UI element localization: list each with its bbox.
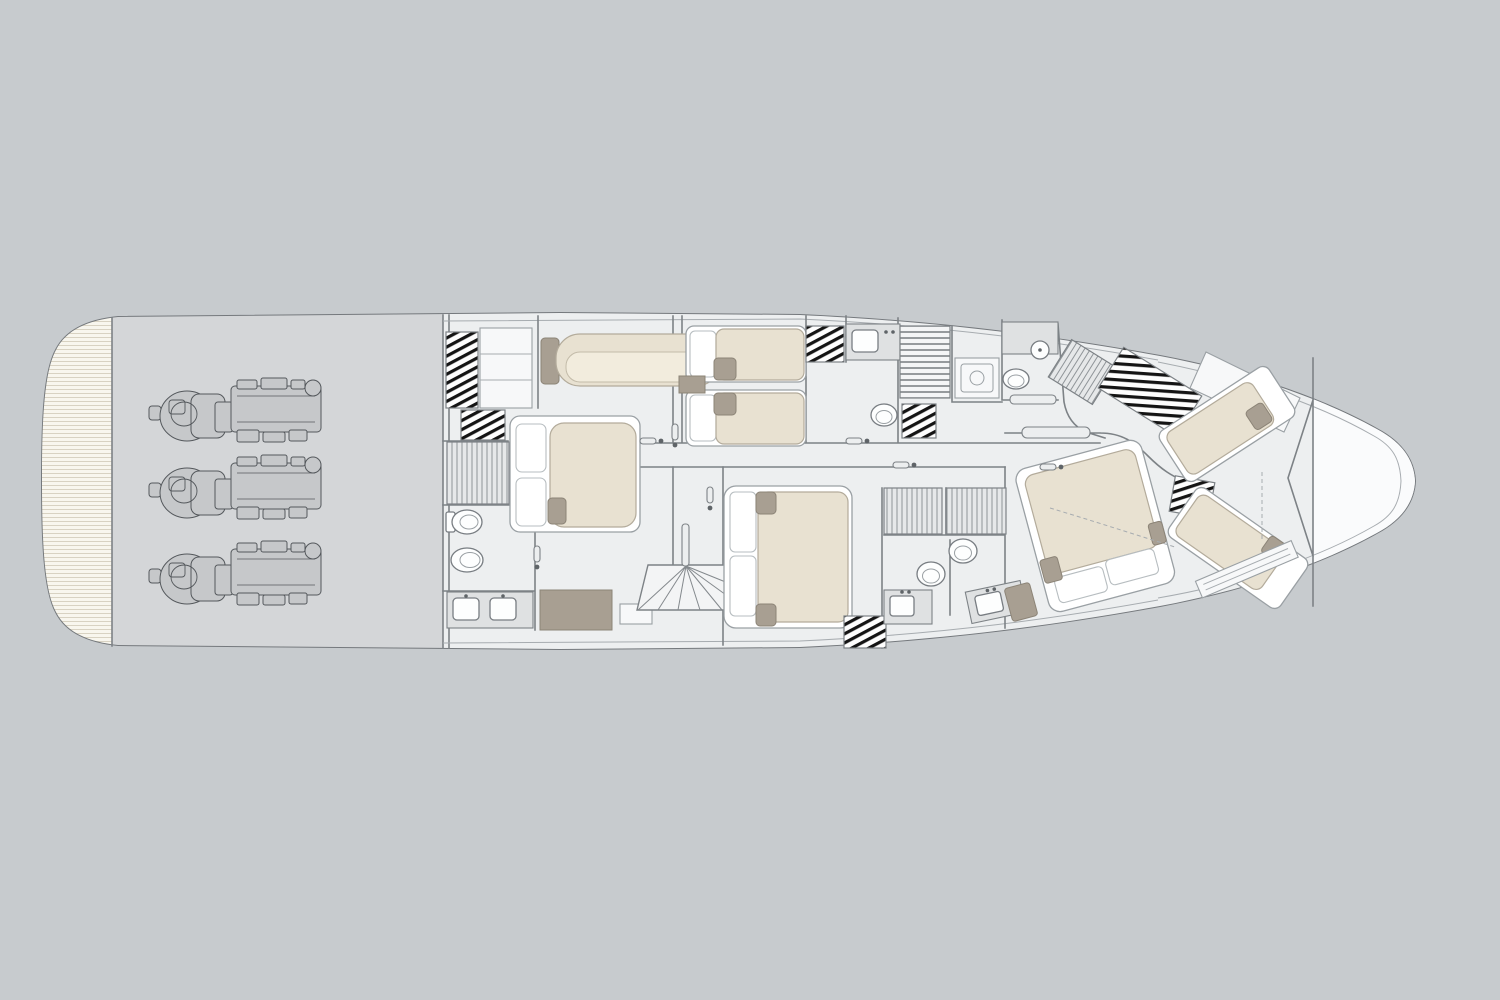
twin-vanity <box>846 324 900 360</box>
twin-pillow-2 <box>690 395 716 441</box>
master-bench <box>540 590 612 630</box>
master-pillow-2 <box>516 478 546 526</box>
floor-plan-canvas <box>0 0 1500 1000</box>
twin-wardrobe-hatch <box>806 326 844 362</box>
master-bed <box>510 416 640 532</box>
stair-handrail <box>682 524 689 566</box>
sliding-door-day-head <box>1010 395 1056 404</box>
mid-pillow-1 <box>730 492 756 552</box>
master-toilet <box>446 510 482 534</box>
door-handle-mid-cabin <box>707 487 713 510</box>
vip-sideboard <box>1022 427 1090 438</box>
door-handle-guest-bath <box>893 462 916 468</box>
engine-room <box>149 378 321 605</box>
twin-toilet <box>871 404 897 426</box>
twin-bed-2 <box>686 390 806 446</box>
bow-storage-floor <box>1313 310 1423 655</box>
guest-toilet-2 <box>949 539 977 563</box>
laundry-appliance <box>955 358 999 398</box>
mid-corner-2 <box>756 604 776 626</box>
door-handle-master-bath <box>534 546 540 569</box>
twin-sink <box>852 330 878 352</box>
day-head-toilet <box>1003 369 1029 389</box>
yacht-lower-deck-plan <box>0 0 1500 1000</box>
shower-floor-2 <box>946 488 1006 534</box>
mid-corner-1 <box>756 492 776 514</box>
shower-floor-1 <box>884 488 942 534</box>
master-pillow-1 <box>516 424 546 472</box>
door-handle-master <box>640 438 663 444</box>
master-vanity <box>447 592 533 628</box>
walk-in-closet-floor <box>447 442 509 504</box>
guest-sink-1 <box>890 596 914 616</box>
twin-pillow-1 <box>690 331 716 377</box>
mid-wardrobe-hatch <box>844 616 886 648</box>
door-handle-vip <box>1040 464 1063 470</box>
door-handle-twin-bath <box>846 438 869 444</box>
master-sink-1 <box>453 598 479 620</box>
master-cabinet <box>480 328 532 408</box>
guest-vanity-1 <box>884 590 932 624</box>
twin-bed-1 <box>686 326 806 382</box>
master-throw-corner <box>548 498 566 524</box>
master-sink-2 <box>490 598 516 620</box>
twin-corner-2 <box>714 393 736 415</box>
mid-pillow-2 <box>730 556 756 616</box>
master-wardrobe-hatch-1 <box>446 332 478 408</box>
corridor-wardrobe-hatch <box>902 404 936 438</box>
twin-corner-1 <box>714 358 736 380</box>
guest-toilet-1 <box>917 562 945 586</box>
mid-bed <box>724 486 852 628</box>
crew-stairs <box>900 326 950 398</box>
master-bidet <box>451 548 483 572</box>
door-handle-corridor <box>672 424 678 447</box>
twin-nightstand <box>679 376 705 393</box>
master-wardrobe-hatch-2 <box>461 410 505 440</box>
